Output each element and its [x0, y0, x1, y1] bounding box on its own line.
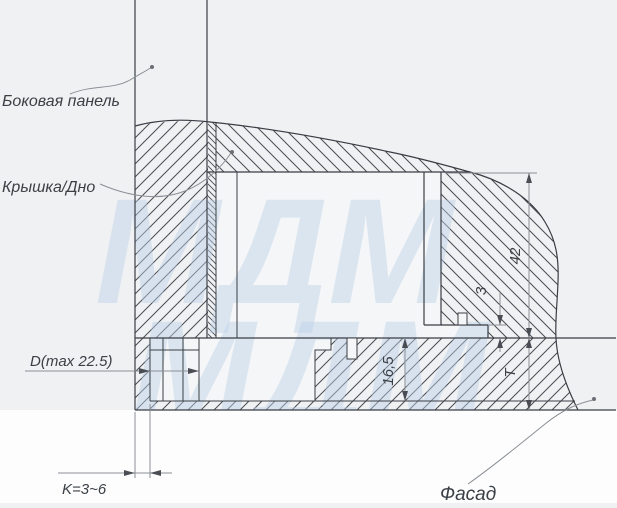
connector-pin-lower: [347, 338, 357, 359]
facade-label: Фасад: [440, 484, 496, 503]
dimension-value-42: 42: [507, 247, 524, 264]
side-panel-label: Боковая панель: [2, 93, 120, 110]
cover-bottom-label: Крышка/Дно: [2, 179, 95, 196]
leader-dot-icon: [150, 65, 154, 69]
dimension-value-16-5: 16,5: [380, 356, 397, 386]
dimension-label-d: D(max 22.5): [30, 353, 113, 370]
leader-dot-icon: [230, 150, 234, 154]
dimension-value-3: 3: [473, 286, 490, 295]
connector-pin-upper: [458, 313, 467, 325]
leader-dot-icon: [592, 397, 596, 401]
dimension-label-k: K=3~6: [62, 481, 107, 498]
technical-drawing-canvas: МДМ МДМ: [0, 0, 617, 503]
